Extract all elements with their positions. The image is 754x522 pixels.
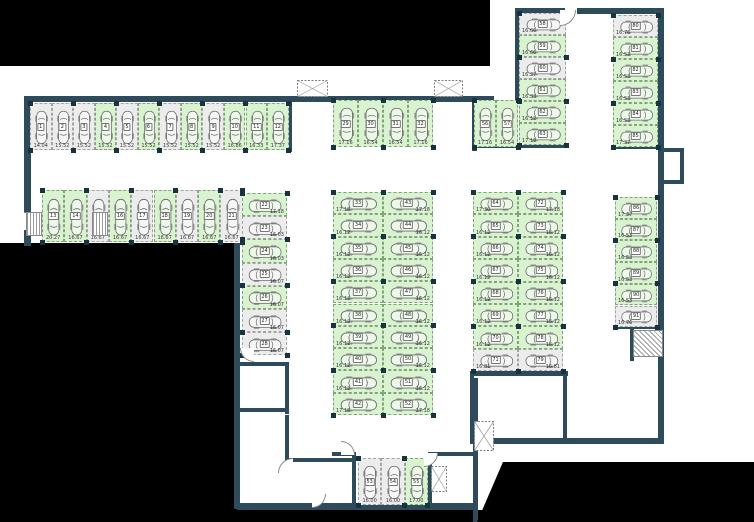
parking-space-67[interactable]: 6716.12	[473, 259, 518, 281]
parking-space-46[interactable]: 4616.12	[383, 259, 433, 281]
parking-space-21[interactable]: 2116.67	[220, 190, 242, 242]
parking-space-78[interactable]: 7816.12	[518, 326, 563, 348]
parking-space-59[interactable]: 5916.66	[519, 35, 566, 57]
space-number: 40	[353, 355, 363, 363]
pillar	[431, 145, 436, 150]
parking-space-27[interactable]: 2716.07	[242, 309, 287, 332]
space-number: 71	[490, 356, 500, 364]
space-number: 4	[102, 123, 109, 131]
space-area-label: 17.18	[416, 207, 430, 213]
space-number: 17	[137, 212, 147, 220]
parking-space-7[interactable]: 715.52	[159, 103, 181, 150]
space-area-label: 16.81	[476, 364, 490, 370]
parking-space-51[interactable]: 5116.12	[383, 370, 433, 392]
pillar	[472, 98, 477, 103]
parking-space-76[interactable]: 7616.12	[518, 282, 563, 304]
space-area-label: 16.12	[336, 252, 350, 258]
parking-space-42[interactable]: 4217.18	[333, 393, 383, 415]
space-number: 2	[59, 123, 66, 131]
pillar	[516, 369, 521, 374]
space-area-label: 15.52	[74, 143, 94, 149]
parking-space-66[interactable]: 6616.12	[473, 237, 518, 259]
pillar	[157, 148, 162, 153]
parking-space-71[interactable]: 7116.81	[473, 349, 518, 371]
parking-space-73[interactable]: 7316.12	[518, 214, 563, 236]
parking-space-58[interactable]: 5816.66	[519, 13, 566, 35]
space-number: 74	[535, 244, 545, 252]
space-area-label: 16.12	[476, 275, 490, 281]
parking-floor-plan: 114.04215.52315.52415.52515.52615.52715.…	[0, 0, 754, 522]
pillar	[285, 353, 290, 358]
parking-space-52[interactable]: 5217.18	[383, 393, 433, 415]
door-arc-icon	[341, 441, 355, 455]
parking-space-16[interactable]: 1616.67	[109, 190, 131, 242]
space-number: 19	[182, 212, 192, 220]
space-area-label: 17.16	[475, 140, 495, 146]
pillar	[561, 279, 566, 284]
space-number: 6	[145, 123, 152, 131]
parking-space-12[interactable]: 1217.37	[267, 103, 289, 150]
space-number: 68	[490, 289, 500, 297]
pillar	[564, 143, 569, 148]
pillar	[402, 456, 407, 461]
wall-segment	[285, 362, 289, 414]
space-area-label: 16.54	[359, 140, 382, 146]
pillar	[564, 55, 569, 60]
space-area-label: 16.53	[618, 233, 632, 239]
space-area-label: 17.18	[336, 207, 350, 213]
space-area-label: 17.18	[546, 207, 560, 213]
space-area-label: 16.12	[336, 274, 350, 280]
pillar	[611, 57, 616, 62]
pillar	[331, 413, 336, 418]
pillar	[613, 195, 618, 200]
parking-space-14[interactable]: 1416.67	[64, 190, 86, 242]
parking-space-36[interactable]: 3616.12	[333, 259, 383, 281]
space-number: 88	[631, 247, 641, 255]
space-area-label: 16.07	[270, 279, 284, 285]
space-number: 44	[403, 221, 413, 229]
space-number: 51	[403, 378, 413, 386]
pillar	[655, 238, 660, 243]
space-number: 66	[490, 244, 500, 252]
pillar	[516, 324, 521, 329]
space-number: 57	[502, 120, 512, 128]
parking-space-22[interactable]: 2217.18	[242, 193, 287, 216]
pillar	[84, 240, 89, 245]
space-number: 38	[353, 311, 363, 319]
space-number: 61	[537, 86, 547, 94]
space-number: 14	[70, 212, 80, 220]
pillar	[200, 148, 205, 153]
space-number: 11	[251, 123, 261, 131]
pillar	[381, 323, 386, 328]
parking-space-49[interactable]: 4916.12	[383, 326, 433, 348]
space-number: 70	[490, 334, 500, 342]
space-number: 22	[259, 201, 269, 209]
space-area-label: 16.12	[336, 230, 350, 236]
space-area-label: 16.12	[336, 296, 350, 302]
pillar	[431, 190, 436, 195]
parking-space-9[interactable]: 915.52	[202, 103, 224, 150]
parking-space-86[interactable]: 8617.37	[615, 197, 657, 219]
space-number: 31	[390, 120, 400, 128]
pillar	[286, 101, 291, 106]
parking-space-43[interactable]: 4317.18	[383, 192, 433, 214]
space-number: 87	[631, 226, 641, 234]
space-area-label: 16.76	[618, 320, 632, 326]
stairs-icon	[92, 212, 108, 236]
pillar	[114, 101, 119, 106]
space-area-label: 16.86	[225, 143, 245, 149]
parking-space-5[interactable]: 515.52	[116, 103, 138, 150]
pillar	[381, 413, 386, 418]
space-number: 34	[353, 221, 363, 229]
space-number: 16	[115, 212, 125, 220]
parking-space-35[interactable]: 3516.12	[333, 237, 383, 259]
space-number: 37	[353, 288, 363, 296]
space-number: 3	[80, 123, 87, 131]
pillar	[516, 279, 521, 284]
pillar	[431, 368, 436, 373]
parking-space-88[interactable]: 8816.53	[615, 240, 657, 262]
parking-space-48[interactable]: 4816.12	[383, 304, 433, 326]
pillar	[561, 369, 566, 374]
space-number: 48	[403, 311, 413, 319]
space-area-label: 15.52	[96, 143, 116, 149]
parking-space-90[interactable]: 9016.53	[615, 284, 657, 306]
parking-space-31[interactable]: 3116.54	[383, 100, 408, 147]
parking-space-80[interactable]: 8016.76	[613, 15, 658, 37]
pillar	[471, 279, 476, 284]
space-number: 91	[631, 312, 641, 320]
space-number: 69	[490, 311, 500, 319]
space-number: 41	[353, 378, 363, 386]
space-number: 18	[159, 212, 169, 220]
parking-space-8[interactable]: 815.52	[181, 103, 203, 150]
pillar	[381, 234, 386, 239]
parking-space-40[interactable]: 4016.12	[333, 348, 383, 370]
parking-space-91[interactable]: 9116.76	[615, 306, 657, 328]
space-area-label: 17.18	[270, 209, 284, 215]
space-number: 82	[630, 66, 640, 74]
space-number: 56	[480, 120, 490, 128]
parking-space-20[interactable]: 2016.67	[198, 190, 220, 242]
pillar	[561, 190, 566, 195]
pillar	[471, 190, 476, 195]
space-number: 67	[490, 266, 500, 274]
parking-space-10[interactable]: 1016.86	[224, 103, 246, 150]
pillar	[656, 13, 661, 18]
pillar	[331, 279, 336, 284]
pillar	[240, 237, 245, 242]
space-number: 63	[537, 130, 547, 138]
space-number: 21	[226, 212, 236, 220]
space-number: 13	[48, 212, 58, 220]
space-number: 72	[535, 199, 545, 207]
parking-space-77[interactable]: 7716.12	[518, 304, 563, 326]
space-area-label: 16.03	[270, 256, 284, 262]
pillar	[431, 98, 436, 103]
space-area-label: 16.33	[247, 143, 267, 149]
space-area-label: 17.18	[416, 408, 430, 414]
stairs-icon	[633, 330, 663, 357]
pillar	[218, 188, 223, 193]
pillar	[655, 195, 660, 200]
space-area-label: 16.12	[336, 386, 350, 392]
parking-space-56[interactable]: 5617.16	[474, 100, 496, 147]
space-number: 12	[273, 123, 283, 131]
parking-space-41[interactable]: 4116.12	[333, 370, 383, 392]
door-arc-icon	[240, 348, 254, 362]
space-area-label: 16.12	[546, 342, 560, 348]
space-number: 59	[537, 42, 547, 50]
parking-space-84[interactable]: 8416.53	[613, 103, 658, 125]
pillar	[381, 145, 386, 150]
wall-segment	[577, 8, 664, 14]
pillar	[285, 237, 290, 242]
space-number: 23	[259, 224, 269, 232]
parking-space-79[interactable]: 7916.81	[518, 349, 563, 371]
pillar	[613, 281, 618, 286]
space-area-label: 17.37	[618, 212, 632, 218]
door-arc-icon	[424, 453, 438, 467]
pillar	[431, 413, 436, 418]
pillar	[517, 99, 522, 104]
pillar	[243, 101, 248, 106]
parking-space-63[interactable]: 6317.18	[519, 123, 566, 145]
space-area-label: 16.12	[416, 319, 430, 325]
space-number: 53	[364, 478, 374, 486]
parking-space-6[interactable]: 615.52	[138, 103, 160, 150]
pillar	[114, 148, 119, 153]
pillar	[381, 368, 386, 373]
space-number: 46	[403, 266, 413, 274]
wall-segment	[237, 408, 287, 412]
pillar	[71, 101, 76, 106]
space-number: 49	[403, 333, 413, 341]
space-number: 5	[123, 123, 130, 131]
parking-space-23[interactable]: 2316.03	[242, 216, 287, 239]
space-number: 20	[204, 212, 214, 220]
space-area-label: 16.53	[616, 96, 630, 102]
space-area-label: 15.52	[182, 143, 202, 149]
pillar	[431, 234, 436, 239]
space-number: 50	[403, 355, 413, 363]
space-area-label: 16.67	[177, 235, 197, 241]
space-area-label: 16.12	[476, 252, 490, 258]
parking-space-17[interactable]: 1716.67	[131, 190, 153, 242]
parking-space-26[interactable]: 2616.07	[242, 286, 287, 309]
space-area-label: 16.07	[270, 348, 284, 354]
space-number: 79	[535, 356, 545, 364]
parking-space-24[interactable]: 2416.03	[242, 239, 287, 262]
pillar	[471, 234, 476, 239]
shaft-icon	[431, 466, 447, 492]
parking-space-11[interactable]: 1116.33	[246, 103, 268, 150]
parking-space-32[interactable]: 3217.16	[408, 100, 433, 147]
pillar	[517, 143, 522, 148]
parking-space-13[interactable]: 1320.27	[42, 190, 64, 242]
pillar	[517, 55, 522, 60]
pillar	[331, 368, 336, 373]
pillar	[40, 240, 45, 245]
space-area-label: 16.53	[616, 118, 630, 124]
pillar	[471, 369, 476, 374]
space-number: 77	[535, 311, 545, 319]
pillar	[611, 13, 616, 18]
parking-space-89[interactable]: 8916.53	[615, 262, 657, 284]
door-arc-icon	[560, 10, 576, 26]
space-area-label: 16.54	[384, 140, 407, 146]
space-number: 54	[388, 478, 398, 486]
parking-space-34[interactable]: 3416.12	[333, 214, 383, 236]
space-area-label: 16.33	[522, 94, 536, 100]
space-area-label: 16.07	[270, 325, 284, 331]
parking-space-75[interactable]: 7516.12	[518, 259, 563, 281]
parking-space-1[interactable]: 114.04	[30, 103, 52, 150]
space-area-label: 16.67	[155, 235, 175, 241]
pillar	[129, 240, 134, 245]
space-area-label: 17.18	[336, 408, 350, 414]
space-area-label: 17.30	[476, 207, 490, 213]
space-area-label: 16.12	[476, 319, 490, 325]
parking-space-3[interactable]: 315.52	[73, 103, 95, 150]
pillar	[516, 190, 521, 195]
space-area-label: 15.52	[139, 143, 159, 149]
pillar	[286, 148, 291, 153]
pillar	[517, 11, 522, 16]
pillar	[331, 190, 336, 195]
space-area-label: 16.53	[618, 277, 632, 283]
space-area-label: 16.07	[270, 302, 284, 308]
parking-space-85[interactable]: 8517.37	[613, 125, 658, 147]
space-number: 47	[403, 288, 413, 296]
space-area-label: 16.12	[416, 386, 430, 392]
space-area-label: 16.66	[522, 50, 536, 56]
pillar	[243, 148, 248, 153]
space-area-label: 16.12	[416, 363, 430, 369]
void-area	[0, 243, 237, 522]
shaft-icon	[297, 80, 328, 97]
parking-space-70[interactable]: 7016.12	[473, 326, 518, 348]
space-number: 65	[490, 222, 500, 230]
parking-space-18[interactable]: 1816.67	[154, 190, 176, 242]
parking-space-72[interactable]: 7217.18	[518, 192, 563, 214]
space-area-label: 16.12	[336, 341, 350, 347]
parking-space-53[interactable]: 5316.00	[358, 458, 381, 505]
pillar	[561, 324, 566, 329]
space-area-label: 16.12	[336, 319, 350, 325]
space-number: 90	[631, 291, 641, 299]
wall-segment	[563, 371, 567, 442]
parking-space-39[interactable]: 3916.12	[333, 326, 383, 348]
space-area-label: 16.12	[546, 319, 560, 325]
parking-space-64[interactable]: 6417.30	[473, 192, 518, 214]
parking-space-54[interactable]: 5416.00	[381, 458, 404, 505]
pillar	[285, 191, 290, 196]
space-number: 24	[259, 247, 269, 255]
pillar	[381, 98, 386, 103]
parking-space-62[interactable]: 6216.12	[519, 101, 566, 123]
pillar	[285, 330, 290, 335]
space-number: 39	[353, 333, 363, 341]
parking-space-38[interactable]: 3816.12	[333, 304, 383, 326]
parking-space-68[interactable]: 6816.12	[473, 282, 518, 304]
space-number: 27	[259, 317, 269, 325]
space-number: 26	[259, 293, 269, 301]
space-area-label: 15.52	[117, 143, 137, 149]
parking-space-50[interactable]: 5016.12	[383, 348, 433, 370]
parking-space-33[interactable]: 3317.18	[333, 192, 383, 214]
parking-space-57[interactable]: 5716.54	[496, 100, 518, 147]
space-number: 89	[631, 269, 641, 277]
parking-space-82[interactable]: 8216.53	[613, 59, 658, 81]
parking-space-60[interactable]: 6016.27	[519, 57, 566, 79]
pillar	[218, 240, 223, 245]
parking-space-47[interactable]: 4716.12	[383, 281, 433, 303]
space-area-label: 16.67	[199, 235, 219, 241]
wall-segment	[285, 415, 289, 463]
space-area-label: 16.12	[416, 296, 430, 302]
parking-space-37[interactable]: 3716.12	[333, 281, 383, 303]
pillar	[611, 145, 616, 150]
parking-space-61[interactable]: 6116.33	[519, 79, 566, 101]
void-area	[470, 462, 754, 522]
pillar	[381, 279, 386, 284]
pillar	[240, 283, 245, 288]
pillar	[28, 101, 33, 106]
space-number: 78	[535, 334, 545, 342]
space-number: 42	[353, 400, 363, 408]
parking-space-19[interactable]: 1916.67	[176, 190, 198, 242]
space-number: 58	[537, 20, 547, 28]
space-number: 33	[353, 199, 363, 207]
pillar	[431, 279, 436, 284]
parking-space-45[interactable]: 4516.12	[383, 237, 433, 259]
space-area-label: 15.52	[53, 143, 73, 149]
parking-space-74[interactable]: 7416.12	[518, 237, 563, 259]
parking-space-4[interactable]: 415.52	[95, 103, 117, 150]
space-area-label: 16.12	[546, 297, 560, 303]
parking-space-87[interactable]: 8716.53	[615, 219, 657, 241]
parking-space-29[interactable]: 2917.16	[333, 100, 358, 147]
space-number: 28	[259, 340, 269, 348]
parking-space-81[interactable]: 8116.53	[613, 37, 658, 59]
parking-space-69[interactable]: 6916.12	[473, 304, 518, 326]
pillar	[611, 101, 616, 106]
parking-space-25[interactable]: 2516.07	[242, 263, 287, 286]
parking-space-30[interactable]: 3016.54	[358, 100, 383, 147]
space-number: 7	[166, 123, 173, 131]
space-area-label: 20.27	[43, 235, 63, 241]
space-number: 45	[403, 244, 413, 252]
parking-space-83[interactable]: 8316.53	[613, 81, 658, 103]
pillar	[331, 145, 336, 150]
space-area-label: 16.12	[336, 363, 350, 369]
pillar	[656, 145, 661, 150]
space-number: 76	[535, 289, 545, 297]
space-area-label: 17.00	[406, 498, 427, 504]
space-area-label: 16.12	[546, 275, 560, 281]
parking-space-2[interactable]: 215.52	[52, 103, 74, 150]
parking-space-65[interactable]: 6516.12	[473, 214, 518, 236]
space-number: 10	[230, 123, 240, 131]
pillar	[516, 234, 521, 239]
space-area-label: 16.54	[497, 140, 517, 146]
wall-segment	[289, 458, 353, 462]
parking-space-44[interactable]: 4416.12	[383, 214, 433, 236]
